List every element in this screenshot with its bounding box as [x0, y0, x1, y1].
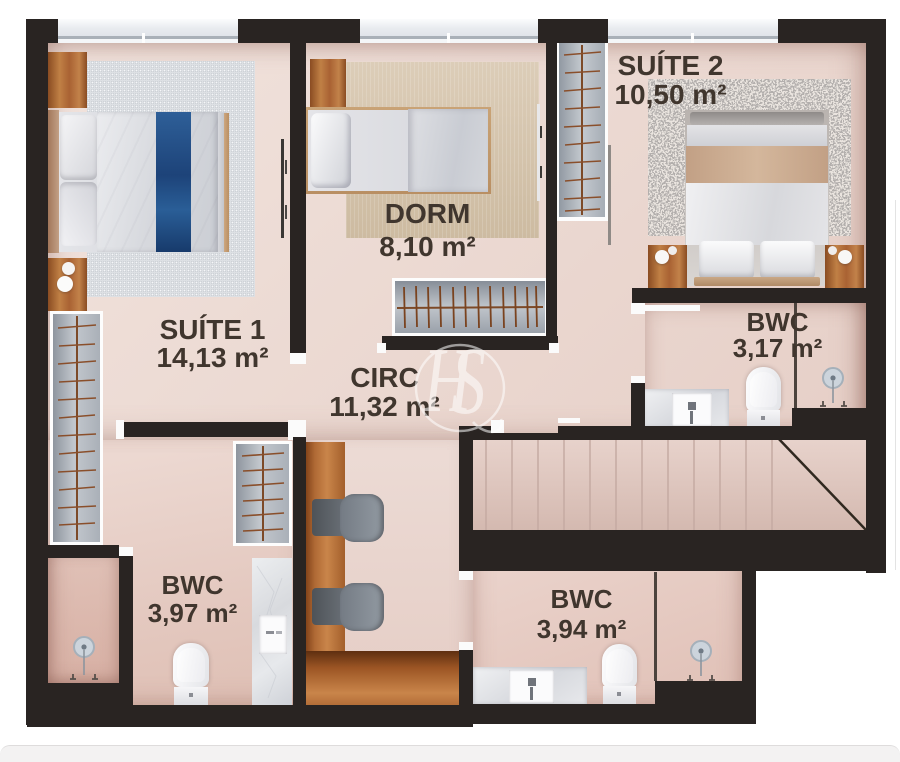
- svg-text:S: S: [451, 328, 486, 435]
